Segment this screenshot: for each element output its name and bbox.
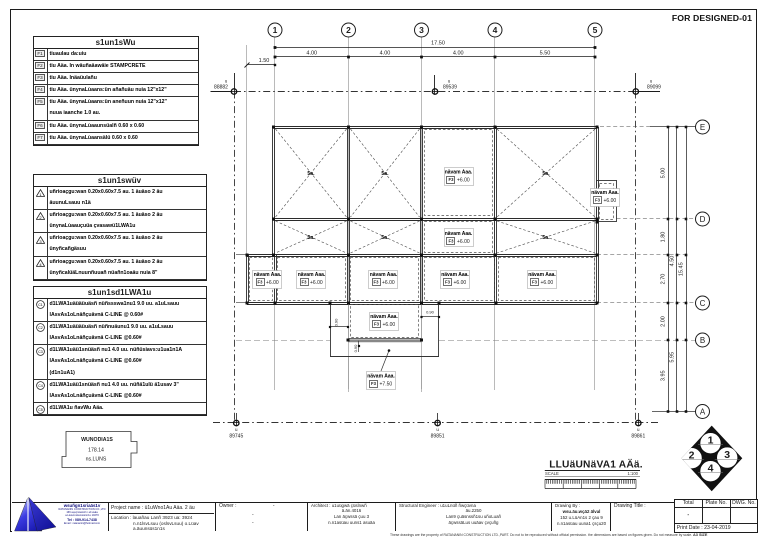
svg-text:5.00: 5.00 <box>661 168 667 179</box>
svg-text:nävam Aaa.: nävam Aaa. <box>370 272 398 278</box>
svg-text:4.00: 4.00 <box>306 51 317 57</box>
svg-text:u: u <box>225 79 228 84</box>
svg-text:nävam Aaa.: nävam Aaa. <box>445 231 473 237</box>
svg-text:B: B <box>700 336 705 345</box>
svg-text:4.50: 4.50 <box>670 256 676 267</box>
svg-text:5a.: 5a. <box>381 171 389 177</box>
svg-text:0.90: 0.90 <box>334 318 339 327</box>
svg-text:1.80: 1.80 <box>661 232 667 243</box>
svg-text:F3: F3 <box>445 280 451 285</box>
svg-text:+6.00: +6.00 <box>604 198 617 204</box>
svg-text:89851: 89851 <box>431 434 445 440</box>
svg-text:+7.50: +7.50 <box>380 381 393 387</box>
svg-text:89099: 89099 <box>647 85 661 91</box>
svg-text:89539: 89539 <box>443 85 457 91</box>
svg-text:178.14: 178.14 <box>88 448 104 454</box>
svg-text:F3: F3 <box>302 280 308 285</box>
svg-text:15.45: 15.45 <box>679 262 685 276</box>
svg-text:nävam Aaa.: nävam Aaa. <box>370 314 398 320</box>
svg-text:2: 2 <box>689 450 695 462</box>
svg-text:1: 1 <box>273 25 278 35</box>
svg-text:u: u <box>650 79 653 84</box>
svg-text:5a.: 5a. <box>542 171 550 177</box>
svg-text:u: u <box>448 79 451 84</box>
svg-text:4: 4 <box>493 25 498 35</box>
svg-text:u: u <box>436 427 439 432</box>
svg-text:3.95: 3.95 <box>661 370 667 381</box>
svg-text:nävam Aaa.: nävam Aaa. <box>591 190 619 196</box>
svg-text:2.70: 2.70 <box>661 274 667 285</box>
svg-text:1.50: 1.50 <box>259 58 270 64</box>
svg-text:5.95: 5.95 <box>670 352 676 363</box>
svg-text:4.00: 4.00 <box>380 51 391 57</box>
svg-text:1: 1 <box>708 435 714 447</box>
svg-text:0.90: 0.90 <box>426 310 435 315</box>
svg-text:+6.00: +6.00 <box>383 322 396 328</box>
svg-text:D: D <box>700 215 706 224</box>
svg-text:5a.: 5a. <box>542 235 550 241</box>
svg-text:89861: 89861 <box>631 434 645 440</box>
svg-text:F3: F3 <box>258 280 264 285</box>
svg-text:17.50: 17.50 <box>431 41 445 47</box>
svg-text:0.90: 0.90 <box>353 344 358 353</box>
svg-text:4: 4 <box>708 463 714 475</box>
svg-text:u: u <box>637 427 640 432</box>
svg-text:A: A <box>700 407 706 416</box>
svg-text:F3: F3 <box>449 177 455 182</box>
svg-text:nävam Aaa.: nävam Aaa. <box>441 272 469 278</box>
svg-text:F3: F3 <box>374 280 380 285</box>
svg-text:F3: F3 <box>595 198 601 203</box>
svg-text:5a.: 5a. <box>307 235 315 241</box>
svg-text:5a.: 5a. <box>381 235 389 241</box>
svg-text:+6.00: +6.00 <box>382 280 395 286</box>
svg-text:+6.00: +6.00 <box>541 280 554 286</box>
svg-text:nävam Aaa.: nävam Aaa. <box>367 374 395 380</box>
svg-text:nävam Aaa.: nävam Aaa. <box>528 272 556 278</box>
svg-text:+6.00: +6.00 <box>266 280 279 286</box>
svg-text:C: C <box>700 299 706 308</box>
svg-text:5a.: 5a. <box>307 171 315 177</box>
svg-text:3: 3 <box>724 449 730 461</box>
svg-text:+6.00: +6.00 <box>310 280 323 286</box>
svg-text:3: 3 <box>419 25 424 35</box>
svg-text:5: 5 <box>593 25 598 35</box>
svg-text:F3: F3 <box>371 381 377 386</box>
svg-text:nävam Aaa.: nävam Aaa. <box>298 272 326 278</box>
svg-text:4.00: 4.00 <box>453 51 464 57</box>
svg-text:+6.00: +6.00 <box>457 239 470 245</box>
svg-text:F3: F3 <box>532 280 538 285</box>
svg-text:u: u <box>235 427 238 432</box>
svg-text:nävam Aaa.: nävam Aaa. <box>445 170 473 176</box>
svg-text:+6.00: +6.00 <box>454 280 467 286</box>
svg-text:88882: 88882 <box>214 85 228 91</box>
svg-text:5.50: 5.50 <box>540 51 551 57</box>
svg-text:WUNODIA1S: WUNODIA1S <box>81 437 113 443</box>
svg-text:F3: F3 <box>374 322 380 327</box>
svg-text:ns.LUNS: ns.LUNS <box>86 457 107 463</box>
svg-text:2.00: 2.00 <box>661 316 667 327</box>
svg-text:89745: 89745 <box>229 434 243 440</box>
svg-text:nävam Aaa.: nävam Aaa. <box>254 272 282 278</box>
svg-text:+6.00: +6.00 <box>457 177 470 183</box>
svg-text:1:100: 1:100 <box>628 471 639 476</box>
svg-text:LLUäUNäVA1 AÄä.: LLUäUNäVA1 AÄä. <box>549 458 643 471</box>
svg-text:2: 2 <box>346 25 351 35</box>
svg-text:SCALE: SCALE <box>545 471 559 476</box>
svg-text:E: E <box>700 123 705 132</box>
svg-text:F3: F3 <box>449 239 455 244</box>
